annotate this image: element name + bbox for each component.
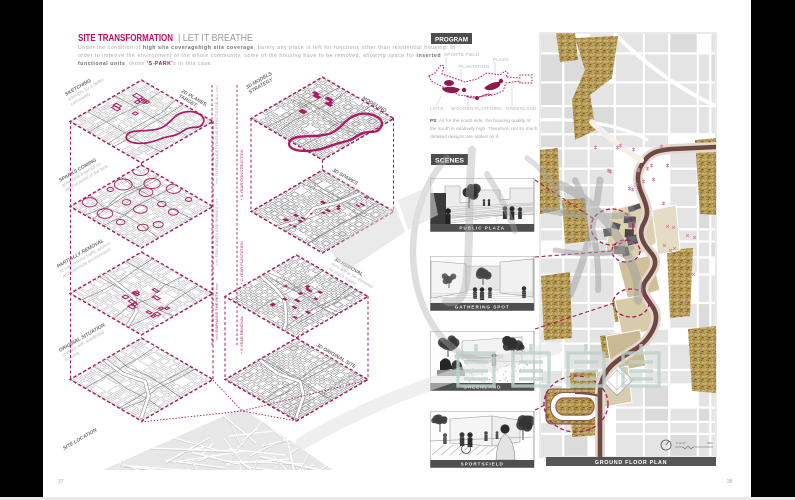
svg-text:38: 38	[727, 479, 733, 485]
svg-text:LIFTS: LIFTS	[430, 106, 444, 111]
svg-text:>>> EMPHASIS THE PATH >>>: >>> EMPHASIS THE PATH >>>	[214, 283, 219, 341]
svg-text:PROGRAM: PROGRAM	[435, 37, 468, 44]
svg-text:Under the condition of high si: Under the condition of high site coverag…	[78, 45, 456, 51]
svg-text:| LET IT BREATHE: | LET IT BREATHE	[178, 33, 253, 44]
svg-text:+ 2-YEAR PLANTATION: + 2-YEAR PLANTATION	[239, 241, 244, 285]
svg-text:>>> FIND JOINTS AND SPARKS >: >>> FIND JOINTS AND SPARKS >>>	[214, 198, 219, 266]
svg-text:>>> TO PRODUCE POSITIVE EFFEC: >>> TO PRODUCE POSITIVE EFFECTS FOR ALL …	[214, 85, 219, 185]
svg-text:the south is relatively high.: the south is relatively high. Therefore,…	[430, 126, 538, 132]
svg-text:+ 5-YEAR REMOVAL: + 5-YEAR REMOVAL	[239, 315, 244, 354]
svg-text:37: 37	[58, 479, 64, 485]
svg-text:GREENLAND: GREENLAND	[506, 106, 537, 111]
svg-text:functional units, those 'S-PAR: functional units, those 'S-PARK's in thi…	[78, 61, 213, 67]
svg-text:SPORTS FIELD: SPORTS FIELD	[444, 52, 480, 57]
svg-text:PS: As for the south side, the: PS: As for the south side, the housing q…	[430, 118, 531, 124]
svg-text:50M: 50M	[707, 441, 713, 445]
svg-text:SITE TRANSFORMATION: SITE TRANSFORMATION	[78, 33, 173, 44]
svg-text:0 10 20: 0 10 20	[676, 441, 686, 445]
svg-text:GATHERING SPOT: GATHERING SPOT	[455, 305, 510, 310]
svg-text:PLAZA: PLAZA	[493, 57, 509, 62]
svg-text:detailed designs are added on: detailed designs are added on it.	[430, 134, 499, 140]
svg-text:+ 5-YEAR CONSTRUCTION: + 5-YEAR CONSTRUCTION	[239, 149, 244, 200]
svg-text:WOODEN PLATFORM: WOODEN PLATFORM	[451, 106, 501, 111]
svg-text:GROUND FLOOR PLAN: GROUND FLOOR PLAN	[595, 460, 667, 466]
svg-text:order to improve the environme: order to improve the environment of the …	[78, 53, 441, 59]
svg-text:SPORTSFIELD: SPORTSFIELD	[461, 462, 504, 467]
svg-text:PLANTATION: PLANTATION	[459, 64, 489, 69]
